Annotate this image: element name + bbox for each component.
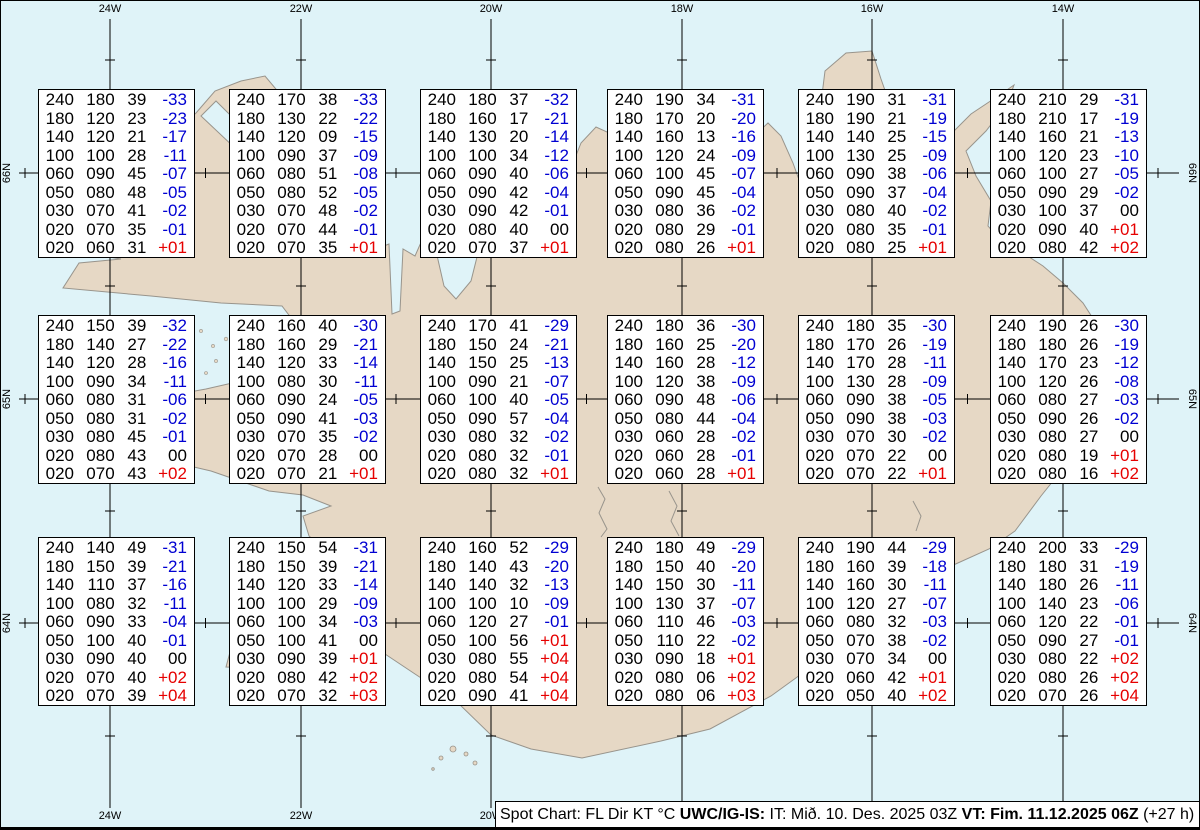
spot-row: 14012033-14 [235, 354, 378, 373]
kt-value: 40 [507, 391, 528, 410]
kt-value: 28 [694, 428, 715, 447]
fl-value: 020 [613, 687, 643, 706]
fl-value: 180 [426, 336, 456, 355]
spot-row: 03007030-02 [804, 428, 947, 447]
spot-box: 24017038-3318013022-2214012009-151000903… [229, 89, 386, 258]
spot-row: 05009057-04 [426, 410, 569, 429]
fl-value: 020 [235, 239, 265, 258]
kt-value: 32 [885, 613, 906, 632]
kt-value: 22 [1077, 613, 1098, 632]
fl-value: 020 [804, 687, 834, 706]
dir-value: 100 [1037, 202, 1067, 221]
spot-row: 24016052-29 [426, 539, 569, 558]
kt-value: 40 [1077, 221, 1098, 240]
temp-value: -19 [1109, 336, 1139, 355]
temp-value: -21 [539, 110, 569, 129]
fl-value: 050 [235, 410, 265, 429]
temp-value: -33 [348, 91, 378, 110]
dir-value: 070 [845, 632, 875, 651]
kt-value: 27 [1077, 428, 1098, 447]
kt-value: 43 [125, 465, 146, 484]
kt-value: 32 [316, 687, 337, 706]
dir-value: 080 [845, 221, 875, 240]
spot-row: 06009045-07 [44, 165, 187, 184]
fl-value: 100 [44, 595, 74, 614]
dir-value: 090 [845, 391, 875, 410]
dir-value: 150 [467, 336, 497, 355]
spot-row: 02008035-01 [804, 221, 947, 240]
dir-value: 070 [85, 465, 115, 484]
kt-value: 26 [1077, 410, 1098, 429]
temp-value: -19 [1109, 558, 1139, 577]
fl-value: 240 [44, 91, 74, 110]
fl-value: 240 [235, 91, 265, 110]
dir-value: 120 [654, 373, 684, 392]
dir-value: 130 [276, 110, 306, 129]
fl-value: 240 [235, 539, 265, 558]
dir-value: 100 [467, 391, 497, 410]
fl-value: 100 [613, 147, 643, 166]
spot-box: 24019031-3118019021-1914014025-151001302… [798, 89, 955, 258]
kt-value: 20 [694, 110, 715, 129]
kt-value: 13 [694, 128, 715, 147]
spot-row: 05011022-02 [613, 632, 756, 651]
spot-row: 14013020-14 [426, 128, 569, 147]
dir-value: 180 [85, 91, 115, 110]
spot-row: 18016017-21 [426, 110, 569, 129]
dir-value: 170 [845, 354, 875, 373]
spot-box: 24015054-3118015039-2114012033-141001002… [229, 537, 386, 706]
dir-value: 070 [276, 428, 306, 447]
spot-row: 18015040-20 [613, 558, 756, 577]
spot-row: 05008048-05 [44, 184, 187, 203]
dir-value: 090 [654, 391, 684, 410]
spot-row: 18016039-18 [804, 558, 947, 577]
dir-value: 090 [85, 613, 115, 632]
dir-value: 160 [654, 128, 684, 147]
dir-value: 090 [845, 410, 875, 429]
spot-row: 03007035-02 [235, 428, 378, 447]
fl-value: 240 [235, 317, 265, 336]
kt-value: 45 [125, 428, 146, 447]
dir-value: 140 [467, 576, 497, 595]
temp-value: -22 [157, 336, 187, 355]
fl-value: 240 [426, 539, 456, 558]
spot-row: 06010027-05 [996, 165, 1139, 184]
temp-value: 00 [917, 447, 947, 466]
temp-value: -02 [917, 632, 947, 651]
temp-value: -07 [157, 165, 187, 184]
temp-value: 00 [348, 447, 378, 466]
fl-value: 020 [235, 465, 265, 484]
kt-value: 35 [885, 317, 906, 336]
temp-value: -02 [1109, 410, 1139, 429]
spot-row: 14012021-17 [44, 128, 187, 147]
fl-value: 020 [996, 447, 1026, 466]
kt-value: 36 [694, 202, 715, 221]
kt-value: 35 [316, 428, 337, 447]
kt-value: 39 [125, 558, 146, 577]
spot-row: 02007037+01 [426, 239, 569, 258]
spot-row: 24018037-32 [426, 91, 569, 110]
temp-value: -23 [157, 110, 187, 129]
fl-value: 060 [613, 165, 643, 184]
temp-value: -11 [726, 576, 756, 595]
kt-value: 25 [885, 128, 906, 147]
temp-value: +01 [348, 239, 378, 258]
longitude-label-top: 18W [662, 3, 702, 16]
spot-row: 02009041+04 [426, 687, 569, 706]
fl-value: 180 [613, 336, 643, 355]
temp-value: -29 [539, 317, 569, 336]
kt-value: 30 [885, 428, 906, 447]
dir-value: 180 [845, 317, 875, 336]
temp-value: -02 [917, 202, 947, 221]
fl-value: 020 [426, 447, 456, 466]
fl-value: 020 [613, 669, 643, 688]
spot-row: 14015025-13 [426, 354, 569, 373]
dir-value: 090 [845, 184, 875, 203]
kt-value: 38 [316, 91, 337, 110]
dir-value: 110 [654, 613, 684, 632]
temp-value: -15 [348, 128, 378, 147]
kt-value: 48 [694, 391, 715, 410]
temp-value: -31 [917, 91, 947, 110]
kt-value: 29 [694, 221, 715, 240]
dir-value: 150 [276, 539, 306, 558]
dir-value: 090 [845, 165, 875, 184]
fl-value: 060 [996, 613, 1026, 632]
latitude-label-right: 65N [1186, 384, 1198, 414]
temp-value: +01 [539, 465, 569, 484]
fl-value: 020 [426, 465, 456, 484]
dir-value: 120 [276, 128, 306, 147]
fl-value: 180 [996, 336, 1026, 355]
fl-value: 240 [613, 539, 643, 558]
spot-row: 06010040-05 [426, 391, 569, 410]
temp-value: -15 [917, 128, 947, 147]
temp-value: -14 [539, 128, 569, 147]
dir-value: 070 [845, 650, 875, 669]
kt-value: 39 [125, 687, 146, 706]
fl-value: 020 [996, 669, 1026, 688]
fl-value: 140 [804, 354, 834, 373]
dir-value: 140 [845, 128, 875, 147]
temp-value: -20 [726, 558, 756, 577]
fl-value: 020 [804, 221, 834, 240]
temp-value: -09 [917, 373, 947, 392]
dir-value: 110 [654, 632, 684, 651]
spot-row: 14012009-15 [235, 128, 378, 147]
fl-value: 140 [996, 576, 1026, 595]
kt-value: 27 [1077, 391, 1098, 410]
fl-value: 020 [996, 239, 1026, 258]
kt-value: 22 [1077, 650, 1098, 669]
temp-value: -02 [726, 632, 756, 651]
spot-row: 24019044-29 [804, 539, 947, 558]
spot-chart-canvas: 24W22W20W18W16W14W 24W22W20W18W16W14W 66… [0, 0, 1200, 830]
spot-row: 10008032-11 [44, 595, 187, 614]
kt-value: 25 [885, 239, 906, 258]
dir-value: 070 [276, 221, 306, 240]
spot-box: 24016052-2918014043-2014014032-131001001… [420, 537, 577, 706]
temp-value: -30 [1109, 317, 1139, 336]
spot-row: 03008055+04 [426, 650, 569, 669]
spot-row: 24016040-30 [235, 317, 378, 336]
temp-value: -19 [917, 110, 947, 129]
spot-row: 24018049-29 [613, 539, 756, 558]
fl-value: 020 [44, 465, 74, 484]
dir-value: 090 [654, 650, 684, 669]
kt-value: 26 [885, 336, 906, 355]
dir-value: 080 [85, 410, 115, 429]
dir-value: 090 [1037, 221, 1067, 240]
dir-value: 070 [85, 221, 115, 240]
dir-value: 180 [654, 317, 684, 336]
kt-value: 32 [507, 576, 528, 595]
fl-value: 140 [235, 576, 265, 595]
kt-value: 26 [1077, 317, 1098, 336]
spot-row: 03008032-02 [426, 428, 569, 447]
kt-value: 31 [1077, 558, 1098, 577]
dir-value: 090 [1037, 632, 1067, 651]
fl-value: 030 [613, 650, 643, 669]
spot-row: 18017026-19 [804, 336, 947, 355]
spot-box: 24019034-3118017020-2014016013-161001202… [607, 89, 764, 258]
fl-value: 100 [613, 595, 643, 614]
fl-value: 020 [426, 687, 456, 706]
fl-value: 240 [996, 539, 1026, 558]
fl-value: 100 [235, 595, 265, 614]
kt-value: 32 [125, 595, 146, 614]
kt-value: 42 [885, 669, 906, 688]
spot-row: 05009029-02 [996, 184, 1139, 203]
dir-value: 060 [654, 447, 684, 466]
temp-value: -07 [726, 165, 756, 184]
kt-value: 45 [694, 184, 715, 203]
spot-row: 02007026+04 [996, 687, 1139, 706]
kt-value: 34 [316, 613, 337, 632]
kt-value: 48 [125, 184, 146, 203]
kt-value: 25 [694, 336, 715, 355]
kt-value: 40 [316, 317, 337, 336]
spot-row: 14014025-15 [804, 128, 947, 147]
kt-value: 34 [694, 91, 715, 110]
spot-row: 02008016+02 [996, 465, 1139, 484]
temp-value: -01 [726, 447, 756, 466]
spot-row: 06009038-05 [804, 391, 947, 410]
dir-value: 130 [845, 147, 875, 166]
spot-row: 05009026-02 [996, 410, 1139, 429]
spot-row: 03006028-02 [613, 428, 756, 447]
spot-row: 18014027-22 [44, 336, 187, 355]
dir-value: 080 [85, 595, 115, 614]
spot-row: 06010045-07 [613, 165, 756, 184]
temp-value: +01 [539, 632, 569, 651]
temp-value: +04 [539, 669, 569, 688]
temp-value: -30 [726, 317, 756, 336]
kt-value: 33 [1077, 539, 1098, 558]
dir-value: 080 [654, 669, 684, 688]
kt-value: 46 [694, 613, 715, 632]
fl-value: 100 [44, 373, 74, 392]
fl-value: 240 [804, 539, 834, 558]
kt-value: 26 [1077, 669, 1098, 688]
fl-value: 030 [804, 428, 834, 447]
spot-row: 02007035-01 [44, 221, 187, 240]
temp-value: -19 [917, 336, 947, 355]
kt-value: 21 [316, 465, 337, 484]
dir-value: 210 [1037, 110, 1067, 129]
fl-value: 240 [996, 317, 1026, 336]
kt-value: 54 [316, 539, 337, 558]
spot-row: 02008006+03 [613, 687, 756, 706]
temp-value: -21 [348, 336, 378, 355]
fl-value: 140 [426, 128, 456, 147]
temp-value: 00 [157, 650, 187, 669]
fl-value: 020 [44, 447, 74, 466]
spot-box: 24017041-2918015024-2114015025-131000902… [420, 315, 577, 484]
dir-value: 080 [1037, 428, 1067, 447]
kt-value: 35 [316, 239, 337, 258]
longitude-label-top: 20W [471, 3, 511, 16]
dir-value: 090 [1037, 184, 1067, 203]
temp-value: -01 [348, 221, 378, 240]
temp-value: -04 [157, 613, 187, 632]
fl-value: 100 [235, 373, 265, 392]
temp-value: -11 [157, 373, 187, 392]
temp-value: -01 [1109, 613, 1139, 632]
kt-value: 29 [1077, 184, 1098, 203]
fl-value: 180 [613, 110, 643, 129]
kt-value: 41 [125, 202, 146, 221]
dir-value: 130 [467, 128, 497, 147]
fl-value: 180 [804, 336, 834, 355]
spot-row: 14016021-13 [996, 128, 1139, 147]
dir-value: 080 [654, 410, 684, 429]
dir-value: 090 [467, 165, 497, 184]
fl-value: 050 [426, 410, 456, 429]
kt-value: 44 [316, 221, 337, 240]
temp-value: +01 [157, 239, 187, 258]
fl-value: 030 [804, 650, 834, 669]
fl-value: 100 [235, 147, 265, 166]
fl-value: 240 [426, 91, 456, 110]
kt-value: 45 [125, 165, 146, 184]
temp-value: +01 [1109, 221, 1139, 240]
spot-box: 24015039-3218014027-2214012028-161000903… [38, 315, 195, 484]
kt-value: 19 [1077, 447, 1098, 466]
spot-row: 02008054+04 [426, 669, 569, 688]
kt-value: 27 [125, 336, 146, 355]
kt-value: 36 [694, 317, 715, 336]
kt-value: 28 [885, 354, 906, 373]
temp-value: +02 [157, 465, 187, 484]
fl-value: 240 [804, 317, 834, 336]
dir-value: 150 [654, 576, 684, 595]
dir-value: 080 [467, 221, 497, 240]
dir-value: 100 [654, 165, 684, 184]
fl-value: 060 [426, 391, 456, 410]
dir-value: 190 [845, 110, 875, 129]
spot-row: 02007044-01 [235, 221, 378, 240]
spot-row: 14014032-13 [426, 576, 569, 595]
spot-row: 06012022-01 [996, 613, 1139, 632]
spot-row: 24018039-33 [44, 91, 187, 110]
fl-value: 240 [44, 317, 74, 336]
temp-value: -03 [917, 613, 947, 632]
spot-row: 05009045-04 [613, 184, 756, 203]
temp-value: -01 [539, 202, 569, 221]
spot-row: 14017028-11 [804, 354, 947, 373]
spot-row: 14016013-16 [613, 128, 756, 147]
dir-value: 080 [276, 165, 306, 184]
dir-value: 180 [1037, 336, 1067, 355]
spot-row: 18019021-19 [804, 110, 947, 129]
dir-value: 080 [85, 447, 115, 466]
temp-value: -02 [726, 428, 756, 447]
dir-value: 100 [276, 613, 306, 632]
kt-value: 27 [507, 613, 528, 632]
fl-value: 180 [804, 558, 834, 577]
temp-value: -02 [1109, 184, 1139, 203]
dir-value: 140 [1037, 595, 1067, 614]
fl-value: 020 [426, 239, 456, 258]
fl-value: 030 [44, 202, 74, 221]
spot-row: 14017023-12 [996, 354, 1139, 373]
spot-row: 02005040+02 [804, 687, 947, 706]
dir-value: 160 [845, 558, 875, 577]
dir-value: 130 [845, 373, 875, 392]
kt-value: 31 [125, 410, 146, 429]
dir-value: 080 [845, 202, 875, 221]
latitude-label-right: 64N [1186, 608, 1198, 638]
fl-value: 050 [235, 632, 265, 651]
spot-row: 14016028-12 [613, 354, 756, 373]
spot-row: 0200702200 [804, 447, 947, 466]
temp-value: -11 [157, 147, 187, 166]
fl-value: 140 [996, 128, 1026, 147]
fl-value: 050 [44, 632, 74, 651]
caption-bold-segment: VT: Fim. 11.12.2025 06Z [962, 806, 1139, 823]
fl-value: 020 [996, 221, 1026, 240]
spot-row: 18015024-21 [426, 336, 569, 355]
kt-value: 42 [507, 202, 528, 221]
dir-value: 080 [1037, 669, 1067, 688]
fl-value: 100 [996, 373, 1026, 392]
spot-row: 02007040+02 [44, 669, 187, 688]
spot-row: 05008052-05 [235, 184, 378, 203]
fl-value: 140 [44, 354, 74, 373]
spot-row: 10013037-07 [613, 595, 756, 614]
temp-value: -07 [917, 595, 947, 614]
fl-value: 180 [996, 558, 1026, 577]
dir-value: 080 [85, 184, 115, 203]
spot-box: 24018037-3218016017-2114013020-141001003… [420, 89, 577, 258]
dir-value: 090 [276, 650, 306, 669]
kt-value: 38 [694, 373, 715, 392]
dir-value: 170 [276, 91, 306, 110]
spot-row: 06008032-03 [804, 613, 947, 632]
fl-value: 180 [235, 558, 265, 577]
spot-row: 02008042+02 [996, 239, 1139, 258]
temp-value: -10 [1109, 147, 1139, 166]
dir-value: 120 [1037, 147, 1067, 166]
kt-value: 35 [885, 221, 906, 240]
spot-row: 14012033-14 [235, 576, 378, 595]
fl-value: 140 [804, 576, 834, 595]
kt-value: 22 [316, 110, 337, 129]
